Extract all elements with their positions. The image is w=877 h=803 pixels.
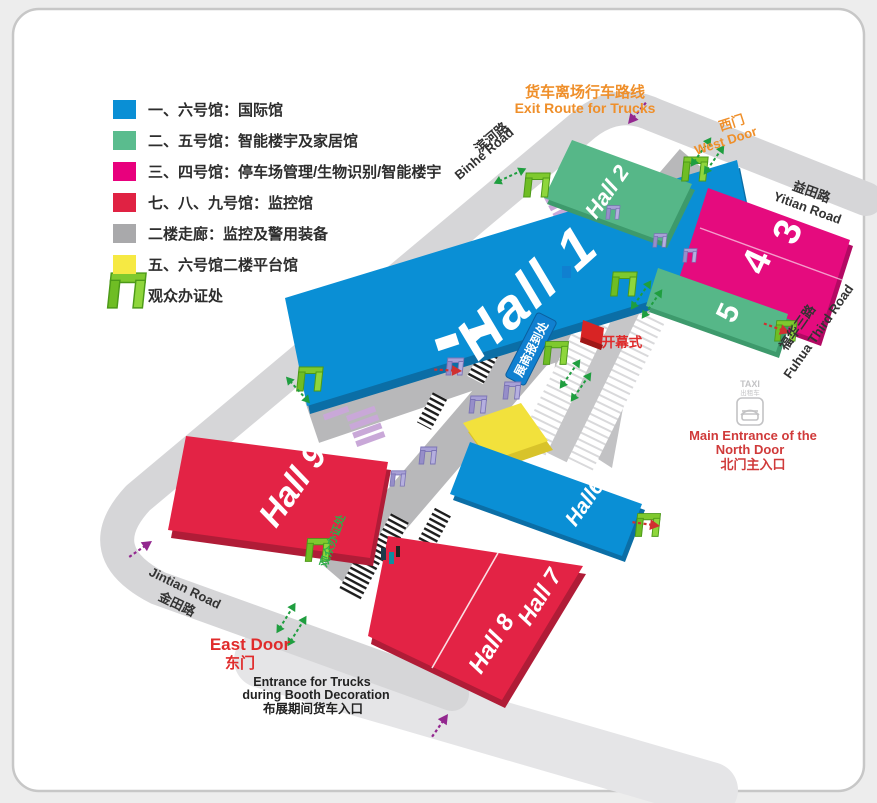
legend-label-1: 一、六号馆：国际馆 xyxy=(148,101,283,119)
legend-label-5: 二楼走廊：监控及警用装备 xyxy=(148,225,329,243)
north-entrance-l2: North Door xyxy=(716,442,785,457)
legend-visitor-badge-label: 观众办证处 xyxy=(148,287,224,305)
north-entrance-l1: Main Entrance of the xyxy=(689,428,817,443)
truck-entrance-l3: 布展期间货车入口 xyxy=(263,701,363,716)
exhibition-map-page: Hall 9 Hall 7 Hall 8 Hall6 Hall 1 xyxy=(0,0,877,803)
east-door-label-en: East Door xyxy=(210,635,291,654)
legend-label-2: 二、五号馆：智能楼宇及家居馆 xyxy=(148,132,358,150)
truck-entrance-l2: during Booth Decoration xyxy=(242,688,389,702)
truck-exit-label-en: Exit Route for Trucks xyxy=(515,100,656,116)
legend-swatch-green xyxy=(113,131,136,150)
truck-exit-label-cn: 货车离场行车路线 xyxy=(525,83,645,101)
taxi-label-cn: 出租车 xyxy=(740,388,760,397)
truck-entrance-l1: Entrance for Trucks xyxy=(253,675,370,689)
east-door-label-cn: 东门 xyxy=(225,654,255,672)
exhibition-map: Hall 9 Hall 7 Hall 8 Hall6 Hall 1 xyxy=(0,0,877,803)
small-sign xyxy=(562,266,571,278)
opening-ceremony-label: 开幕式 xyxy=(602,334,643,350)
legend-label-6: 五、六号馆二楼平台馆 xyxy=(148,256,298,274)
north-entrance-l3: 北门主入口 xyxy=(720,457,785,472)
legend-swatch-magenta xyxy=(113,162,136,181)
taxi-label: TAXI xyxy=(740,379,760,389)
taxi-stand: TAXI 出租车 xyxy=(737,379,763,425)
legend-swatch-gray xyxy=(113,224,136,243)
legend-swatch-red xyxy=(113,193,136,212)
legend-label-3: 三、四号馆：停车场管理/生物识别/智能楼宇 xyxy=(148,163,441,181)
legend-label-4: 七、八、九号馆：监控馆 xyxy=(148,194,313,212)
legend-swatch-blue xyxy=(113,100,136,119)
legend-swatch-yellow xyxy=(113,255,136,274)
